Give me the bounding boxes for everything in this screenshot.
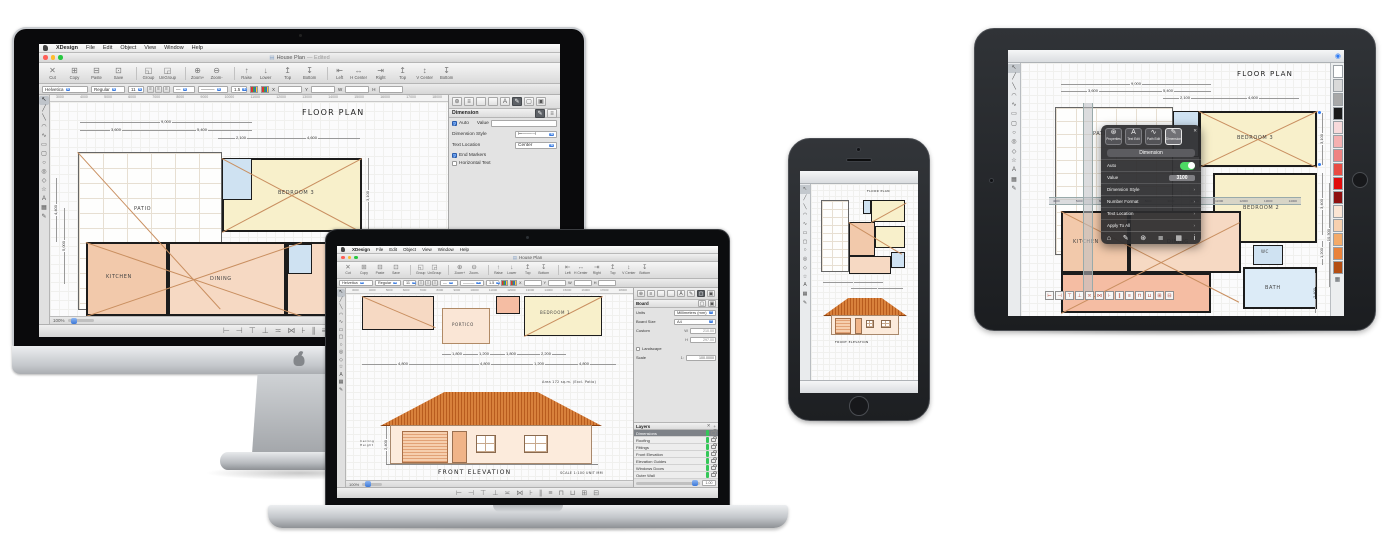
menu-item[interactable]: View (419, 247, 435, 252)
align-button[interactable]: ⊥ (492, 490, 498, 497)
tool-button[interactable]: ╱ (39, 105, 49, 114)
tool-button[interactable]: ▭ (1008, 110, 1020, 119)
ipad-canvas[interactable]: FLOOR PLAN 9,000 3,600 5,400 2,100 4,600 (1021, 63, 1330, 316)
units-select[interactable]: Millimeters (mm)⇅ (674, 310, 716, 316)
auto-toggle[interactable] (1180, 162, 1195, 170)
layer-lock-icon[interactable] (711, 438, 716, 442)
tool-button[interactable]: A (800, 281, 810, 290)
pen-icon[interactable]: ✎ (535, 109, 545, 118)
font-select[interactable]: Helvetica⇅ (339, 280, 373, 286)
align-button[interactable]: ≍ (1085, 291, 1094, 300)
layer-lock-icon[interactable] (711, 445, 716, 449)
tool-button[interactable]: ↖ (337, 289, 345, 297)
w-input[interactable] (345, 86, 369, 93)
align-button[interactable]: ⊤ (1065, 291, 1074, 300)
toolbar-button[interactable]: ↔H Center (349, 67, 368, 80)
tool-button[interactable]: ╲ (337, 304, 345, 312)
elevation-window[interactable] (476, 435, 496, 453)
toolbar-button[interactable]: ↥Top (521, 265, 535, 276)
color-swatch[interactable] (1333, 135, 1343, 148)
tool-button[interactable]: ╲ (39, 114, 49, 123)
window-title: ▤House Plan— Edited (39, 55, 560, 61)
selection-handle[interactable] (1318, 111, 1321, 114)
tool-button[interactable]: ☆ (39, 186, 49, 195)
align-button[interactable]: ⊞ (1155, 291, 1164, 300)
toolbar-button[interactable]: ↧Bottom (537, 265, 551, 276)
ruler-tick: 8000 (437, 288, 444, 293)
menu-item[interactable]: Object (116, 45, 140, 51)
toolbar-button[interactable]: ↓Lower (256, 67, 275, 80)
layer-row[interactable]: Roofing (634, 437, 718, 444)
layer-visibility-icon[interactable] (706, 458, 709, 464)
markers-icon[interactable]: ≡ (547, 109, 557, 118)
dimension-tab-icon[interactable]: ✎ (512, 97, 522, 106)
fill-tab-icon[interactable] (657, 290, 665, 297)
color-swatch[interactable] (1333, 121, 1343, 134)
toolbar-button[interactable]: ⊟Paste (373, 265, 387, 276)
layer-row[interactable]: Fittings (634, 444, 718, 451)
layer-lock-icon[interactable] (711, 466, 716, 470)
color-swatch[interactable] (1333, 191, 1343, 204)
toolbar-button[interactable]: ◲UnGroup (158, 67, 177, 80)
elevation-window[interactable] (866, 320, 874, 328)
shape-tab-icon[interactable]: ▢ (697, 290, 705, 297)
position-icon-button[interactable]: ◉ (1335, 53, 1341, 60)
font-style-select[interactable]: Regular⇅ (375, 280, 401, 286)
layer-visibility-icon[interactable] (706, 451, 709, 457)
color-swatch[interactable] (1333, 233, 1343, 246)
grid-icon[interactable]: ▦ (1335, 276, 1341, 283)
opacity-select[interactable]: 1.5⇅ (231, 86, 247, 93)
tool-button[interactable]: A (39, 195, 49, 204)
horizontal-text-label: Horizontal Text (459, 161, 491, 166)
font-style-select[interactable]: Regular⇅ (91, 86, 125, 93)
end-markers-checkbox[interactable]: ✓ (452, 153, 457, 158)
layer-opacity-slider[interactable] (636, 482, 700, 485)
line-weight-select[interactable]: ———⇅ (198, 86, 228, 93)
popup-row[interactable]: Number Format› (1101, 195, 1201, 207)
align-button[interactable]: ⊟ (593, 490, 599, 497)
menu-item[interactable]: Edit (386, 247, 400, 252)
toolbar-button[interactable]: ⊟Paste (87, 67, 106, 80)
tool-button[interactable]: ✎ (39, 213, 49, 222)
text-location-select[interactable]: Center⇅ (515, 142, 557, 149)
text-tab-icon[interactable]: A (500, 97, 510, 106)
apple-menu-icon[interactable] (43, 45, 48, 51)
toolbar-button[interactable]: ↕V Center (622, 265, 636, 276)
tool-button[interactable]: ▦ (800, 290, 810, 299)
ipad-home-button[interactable] (1352, 172, 1368, 188)
footer-icon-button[interactable]: i (1194, 235, 1196, 242)
tool-button[interactable]: A (1008, 166, 1020, 175)
align-button[interactable]: ⊞ (581, 490, 587, 497)
toolbar-button[interactable]: ↧Bottom (300, 67, 319, 80)
color-swatch[interactable] (1333, 261, 1343, 274)
footer-icon-button[interactable]: ≣ (1158, 234, 1164, 242)
dimension-tab-icon[interactable]: ✎ (687, 290, 695, 297)
zoom-slider[interactable] (68, 319, 94, 322)
align-button[interactable]: ⊟ (1165, 291, 1174, 300)
iphone-canvas[interactable]: FLOOR PLAN FRONT ELEVATION (811, 184, 918, 380)
color-swatch[interactable] (1333, 149, 1343, 162)
align-button[interactable]: ⊔ (570, 490, 575, 497)
justify-button[interactable]: ≡ (418, 280, 424, 286)
tool-button[interactable]: ◠ (1008, 92, 1020, 101)
toolbar-button[interactable]: ⇥Right (371, 67, 390, 80)
menu-item[interactable]: Window (435, 247, 457, 252)
text-tab-icon[interactable]: A (677, 290, 685, 297)
layer-visibility-icon[interactable] (706, 430, 709, 436)
tool-button[interactable]: ╱ (1008, 73, 1020, 82)
tool-button[interactable]: ◎ (39, 168, 49, 177)
tool-button[interactable]: ◇ (39, 177, 49, 186)
tool-button[interactable]: ▦ (39, 204, 49, 213)
tool-button[interactable]: ↖ (1008, 64, 1020, 73)
align-button[interactable]: ⊣ (468, 490, 474, 497)
layer-row[interactable]: Outer Wall (634, 472, 718, 479)
w-input[interactable] (574, 280, 592, 286)
room-wc[interactable] (1253, 245, 1283, 265)
justify-button[interactable]: ≡ (432, 280, 438, 286)
portrait-icon[interactable]: ▢ (698, 300, 706, 307)
layer-visibility-icon[interactable] (706, 437, 709, 443)
tool-button[interactable]: ◠ (800, 211, 810, 220)
toolbar-button[interactable]: ⊡Save (389, 265, 403, 276)
tool-button[interactable]: ◎ (800, 255, 810, 264)
menu-item[interactable]: Object (400, 247, 419, 252)
justify-button[interactable]: ≡ (155, 86, 162, 93)
h-input[interactable] (379, 86, 403, 93)
floating-ruler-vertical[interactable] (1083, 103, 1093, 298)
tool-button[interactable]: ◠ (39, 123, 49, 132)
toolbar-button[interactable]: ✕Cut (43, 67, 62, 80)
popup-tab[interactable]: ⊛Properties (1105, 128, 1122, 145)
toolbar-button[interactable]: ↧Bottom (437, 67, 456, 80)
opacity-select[interactable]: 1.5⇅ (486, 280, 499, 286)
elevation-garage-door[interactable] (402, 431, 448, 463)
scale-input[interactable]: 100.0000 (686, 355, 716, 361)
fill-color-picker[interactable] (250, 86, 258, 93)
menu-item[interactable]: XDesign (52, 45, 82, 51)
apple-menu-icon[interactable] (341, 247, 345, 252)
room-bedroom2[interactable] (875, 226, 905, 248)
align-button[interactable]: ⋈ (1095, 291, 1104, 300)
line-weight-select[interactable]: ———⇅ (460, 280, 484, 286)
align-button[interactable]: ⊥ (1075, 291, 1084, 300)
toolbar-button[interactable]: ⇤Left (327, 67, 346, 80)
elevation-roof[interactable] (823, 298, 907, 316)
horizontal-text-checkbox[interactable] (452, 161, 457, 166)
align-button[interactable]: ≍ (504, 490, 510, 497)
popup-row[interactable]: Text Location› (1101, 207, 1201, 219)
shape-tab-icon[interactable]: ▢ (524, 97, 534, 106)
y-input[interactable] (311, 86, 335, 93)
delete-layer-icon[interactable]: ✕ (707, 423, 711, 429)
tool-button[interactable]: ◇ (337, 357, 345, 365)
ipad-camera (989, 178, 994, 183)
toolbar-button[interactable]: ⊕Zoom+ (185, 67, 204, 80)
popup-row[interactable]: Dimension Style› (1101, 183, 1201, 195)
menu-item[interactable]: Window (160, 45, 188, 51)
toolbar-button[interactable]: ⊞Copy (357, 265, 371, 276)
menu-item[interactable]: File (82, 45, 99, 51)
align-button[interactable]: ⊦ (1105, 291, 1114, 300)
elevation-window[interactable] (524, 435, 548, 453)
toolbar-button[interactable]: ↥Top (278, 67, 297, 80)
color-swatch[interactable] (1333, 219, 1343, 232)
board-tab-icon[interactable]: ▣ (536, 97, 546, 106)
align-button[interactable]: ⋈ (287, 327, 295, 335)
properties-tab-icon[interactable]: ⊛ (637, 290, 645, 297)
align-button[interactable]: ⊓ (558, 490, 563, 497)
color-swatch[interactable] (1333, 177, 1343, 190)
stroke-tab-icon[interactable] (667, 290, 675, 297)
selection-handle[interactable] (1318, 163, 1321, 166)
tool-button[interactable]: ▭ (800, 229, 810, 238)
align-button[interactable]: ⊥ (262, 327, 269, 335)
room-entry[interactable] (496, 296, 520, 314)
color-swatch[interactable] (1333, 247, 1343, 260)
room-bath[interactable] (863, 200, 871, 214)
properties-tab-icon[interactable]: ⊛ (452, 97, 462, 106)
stroke-tab-icon[interactable] (488, 97, 498, 106)
layer-opacity-value[interactable]: 1.00 (702, 480, 716, 486)
tool-button[interactable]: ◎ (337, 349, 345, 357)
footer-icon-button[interactable]: ✎ (1123, 234, 1129, 242)
popup-row[interactable]: Apply To All› (1101, 219, 1201, 231)
macbook-toolbar: ✕Cut⊞Copy⊟Paste⊡Save◱Group◲UnGroup⊕Zoom+… (337, 262, 718, 279)
menu-item[interactable]: File (373, 247, 386, 252)
toolbar-button[interactable]: ↓Lower (505, 265, 519, 276)
tool-button[interactable]: ◠ (337, 312, 345, 320)
toolbar-button[interactable]: ⊖Zoom- (207, 67, 226, 80)
menu-item[interactable]: Help (188, 45, 207, 51)
align-button[interactable]: ≍ (275, 327, 282, 335)
align-button[interactable]: ⊤ (480, 490, 486, 497)
tool-button[interactable]: ▢ (39, 150, 49, 159)
align-button[interactable]: ⋈ (516, 490, 523, 497)
layer-row[interactable]: Dimensions (634, 430, 718, 437)
room-dining[interactable] (849, 256, 891, 274)
justify-button[interactable]: ≡ (147, 86, 154, 93)
toolbar-button[interactable]: ↧Bottom (638, 265, 652, 276)
tool-button[interactable]: ☆ (1008, 157, 1020, 166)
popup-tab[interactable]: AText Edit (1125, 128, 1142, 145)
menu-item[interactable]: View (140, 45, 160, 51)
tool-button[interactable]: ▢ (337, 334, 345, 342)
elevation-front-door[interactable] (855, 318, 862, 334)
board-size-select[interactable]: A4⇅ (674, 319, 716, 325)
align-button[interactable]: ⊣ (236, 327, 243, 335)
tool-button[interactable]: ▦ (337, 379, 345, 387)
line-style-select[interactable]: —⇅ (173, 86, 195, 93)
stroke-color-picker[interactable] (510, 280, 517, 286)
align-button[interactable]: ⊢ (456, 490, 462, 497)
toolbar-button[interactable]: ◱Group (410, 265, 425, 276)
tool-button[interactable]: ╲ (1008, 83, 1020, 92)
tool-button[interactable]: ✎ (337, 387, 345, 395)
layer-row[interactable]: Windows Doors (634, 465, 718, 472)
iphone-home-button[interactable] (849, 396, 869, 416)
color-swatch[interactable] (1333, 79, 1343, 92)
layer-lock-icon[interactable] (711, 452, 716, 456)
align-button[interactable]: ⊦ (301, 327, 305, 335)
tool-button[interactable]: ╱ (337, 297, 345, 305)
color-swatch[interactable] (1333, 163, 1343, 176)
popup-tab[interactable]: ∿Path Edit (1145, 128, 1162, 145)
tool-button[interactable]: ▢ (1008, 120, 1020, 129)
tool-button[interactable]: ○ (39, 159, 49, 168)
toolbar-button[interactable]: ◲UnGroup (427, 265, 441, 276)
align-button[interactable]: ⊓ (1135, 291, 1144, 300)
fill-tab-icon[interactable] (476, 97, 486, 106)
x-input[interactable] (524, 280, 542, 286)
align-button[interactable]: ∥ (312, 327, 316, 335)
elevation-front-door[interactable] (452, 431, 467, 463)
align-button[interactable]: ⊔ (1145, 291, 1154, 300)
align-button[interactable]: ∥ (1115, 291, 1124, 300)
align-button[interactable]: ⊦ (529, 490, 533, 497)
color-swatch[interactable] (1333, 205, 1343, 218)
tool-button[interactable]: ∿ (1008, 101, 1020, 110)
room-patio[interactable] (821, 200, 849, 272)
tool-button[interactable]: ↖ (39, 96, 49, 105)
landscape-checkbox[interactable] (636, 347, 640, 351)
room-bath-small[interactable] (222, 158, 252, 200)
tool-button[interactable]: ∿ (337, 319, 345, 327)
menu-item[interactable]: Help (457, 247, 472, 252)
align-button[interactable]: ∥ (539, 490, 543, 497)
value-input[interactable] (491, 120, 557, 127)
layer-visibility-icon[interactable] (706, 444, 709, 450)
tool-button[interactable]: ╲ (800, 203, 810, 212)
room-bath2[interactable] (891, 252, 905, 268)
layer-visibility-icon[interactable] (706, 465, 709, 471)
footer-icon-button[interactable]: ⊛ (1140, 234, 1146, 242)
list-tab-icon[interactable]: ≡ (464, 97, 474, 106)
toolbar-button[interactable]: ↑Raise (488, 265, 503, 276)
tool-button[interactable]: ○ (800, 246, 810, 255)
tool-button[interactable]: ☆ (800, 273, 810, 282)
tool-button[interactable]: ╱ (800, 194, 810, 203)
auto-checkbox[interactable]: ✓ (452, 121, 457, 126)
layer-row[interactable]: Elevation Guides (634, 458, 718, 465)
tool-button[interactable]: A (337, 372, 345, 380)
tool-button[interactable]: ✎ (1008, 185, 1020, 194)
y-input[interactable] (548, 280, 566, 286)
align-button[interactable]: ≡ (548, 490, 552, 497)
toolbar-button[interactable]: ↕V Center (415, 67, 434, 80)
tool-button[interactable]: ▭ (337, 327, 345, 335)
tool-button[interactable]: ○ (1008, 129, 1020, 138)
tool-button[interactable]: ▢ (800, 238, 810, 247)
tool-button[interactable]: ↖ (800, 185, 810, 194)
align-button[interactable]: ⊢ (223, 327, 230, 335)
value-field[interactable]: 3100 (1169, 175, 1195, 181)
toolbar-button[interactable]: ↔H Center (574, 265, 588, 276)
tool-button[interactable]: ○ (337, 342, 345, 350)
align-button[interactable]: ⊣ (1055, 291, 1064, 300)
height-input[interactable]: 297.00 (690, 337, 716, 343)
zoom-slider[interactable] (362, 483, 382, 486)
room-kitchen[interactable] (849, 222, 875, 256)
layer-row[interactable]: Front Elevation (634, 451, 718, 458)
footer-icon-button[interactable]: ⌂ (1107, 235, 1111, 242)
elevation-window[interactable] (881, 320, 891, 328)
tool-button[interactable]: ▭ (39, 141, 49, 150)
close-icon[interactable]: ✕ (1193, 128, 1197, 134)
width-input[interactable]: 210.00 (690, 328, 716, 334)
ruler-tick: 13000 (526, 288, 534, 293)
tool-button[interactable]: ∿ (800, 220, 810, 229)
x-input[interactable] (278, 86, 302, 93)
line-style-select[interactable]: —⇅ (440, 280, 458, 286)
stroke-color-picker[interactable] (261, 86, 269, 93)
elevation-roof[interactable] (380, 392, 602, 426)
footer-icon-button[interactable]: ▦ (1175, 234, 1182, 242)
toolbar-button[interactable]: ✕Cut (341, 265, 355, 276)
justify-button[interactable]: ≡ (163, 86, 170, 93)
color-swatch[interactable] (1333, 65, 1343, 78)
align-button[interactable]: ≡ (1125, 291, 1134, 300)
toolbar-button[interactable]: ⊕Zoom+ (448, 265, 465, 276)
tool-button[interactable]: ∿ (39, 132, 49, 141)
menu-item[interactable]: XDesign (349, 247, 373, 252)
font-select[interactable]: Helvetica⇅ (42, 86, 88, 93)
tool-button[interactable]: ◇ (1008, 148, 1020, 157)
layer-lock-icon[interactable] (711, 473, 716, 477)
add-layer-icon[interactable]: + (713, 424, 716, 429)
font-size-select[interactable]: 11⇅ (128, 86, 144, 93)
toolbar-button[interactable]: ↥Top (393, 67, 412, 80)
tool-button[interactable]: ▦ (1008, 176, 1020, 185)
justify-button[interactable]: ≡ (425, 280, 431, 286)
toolbar-button[interactable]: ⇥Right (590, 265, 604, 276)
layer-lock-icon[interactable] (711, 459, 716, 463)
tool-button[interactable]: ◎ (1008, 138, 1020, 147)
room-wc-small[interactable] (288, 244, 312, 274)
toolbar-button[interactable]: ⊖Zoom- (467, 265, 481, 276)
macbook-canvas[interactable]: PORTICO BEDROOM 1 1,800 1,200 1,800 2,20… (346, 294, 633, 480)
toolbar-button[interactable]: ◱Group (136, 67, 155, 80)
font-size-select[interactable]: 11⇅ (403, 280, 416, 286)
color-swatch[interactable] (1333, 93, 1343, 106)
toolbar-button[interactable]: ⊞Copy (65, 67, 84, 80)
toolbar-button[interactable]: ⇤Left (558, 265, 572, 276)
align-button[interactable]: ⊤ (249, 327, 256, 335)
elevation-garage-door[interactable] (835, 318, 851, 334)
tool-button[interactable]: ☆ (337, 364, 345, 372)
landscape-icon[interactable]: ▣ (708, 300, 716, 307)
fill-color-picker[interactable] (501, 280, 508, 286)
tool-button[interactable]: ◇ (800, 264, 810, 273)
list-tab-icon[interactable]: ≡ (647, 290, 655, 297)
menu-item[interactable]: Edit (99, 45, 116, 51)
layer-lock-icon[interactable] (711, 431, 716, 435)
ruler-tick: 11000 (489, 288, 497, 293)
h-input[interactable] (598, 280, 616, 286)
board-tab-icon[interactable]: ▣ (707, 290, 715, 297)
color-swatch[interactable] (1333, 107, 1343, 120)
layer-visibility-icon[interactable] (706, 472, 709, 478)
dimension-style-select[interactable]: ⊢——⊣⇅ (515, 131, 557, 138)
toolbar-button[interactable]: ↥Top (606, 265, 620, 276)
toolbar-button[interactable]: ↑Raise (234, 67, 253, 80)
tool-button[interactable]: ✎ (800, 299, 810, 308)
popup-tab[interactable]: ✎Dimension (1165, 128, 1182, 145)
align-button[interactable]: ⊢ (1045, 291, 1054, 300)
toolbar-button[interactable]: ⊡Save (109, 67, 128, 80)
